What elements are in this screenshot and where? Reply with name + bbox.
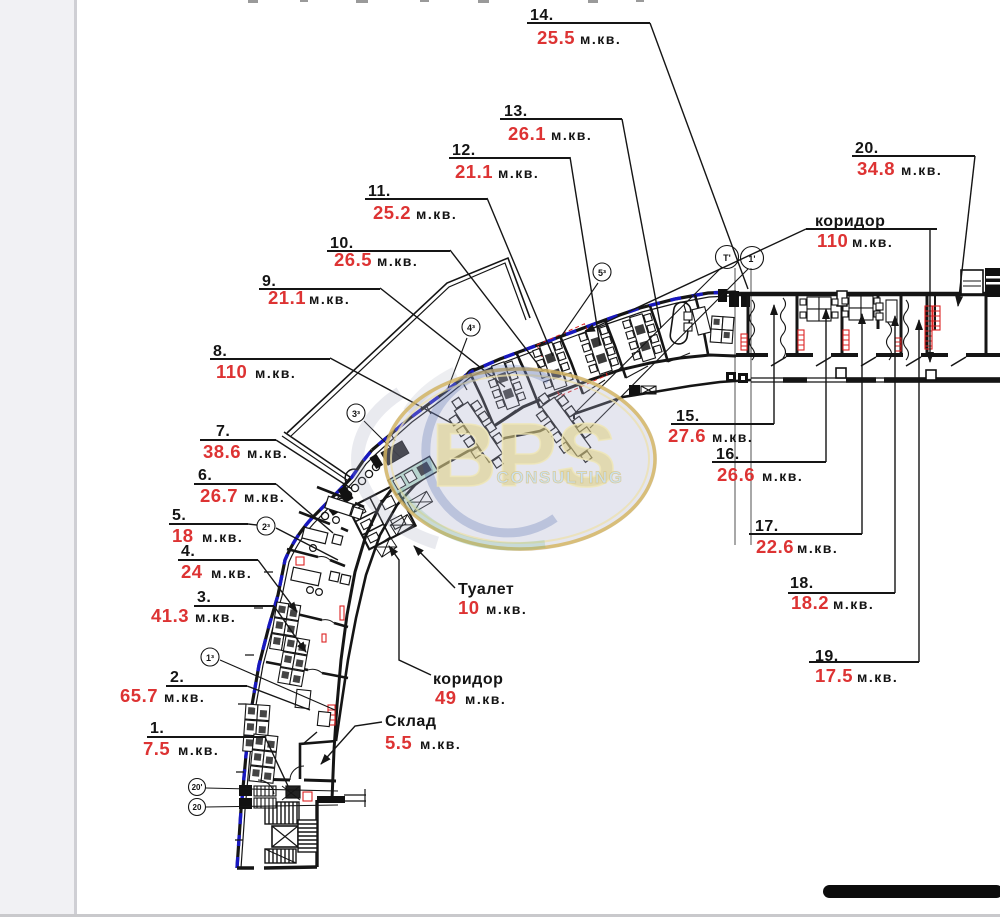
svg-text:м.кв.: м.кв.: [712, 429, 753, 445]
svg-text:7.5: 7.5: [143, 738, 170, 759]
svg-text:3.: 3.: [197, 589, 211, 606]
svg-text:CONSULTING: CONSULTING: [496, 468, 623, 487]
svg-text:3³: 3³: [352, 409, 360, 419]
svg-text:14.: 14.: [530, 7, 554, 24]
svg-text:17.5: 17.5: [815, 665, 853, 686]
svg-text:8.: 8.: [213, 343, 227, 360]
svg-text:м.кв.: м.кв.: [486, 601, 527, 617]
svg-text:13.: 13.: [504, 103, 528, 120]
svg-text:16.: 16.: [716, 446, 740, 463]
svg-text:м.кв.: м.кв.: [244, 489, 285, 505]
svg-text:110: 110: [216, 361, 247, 382]
svg-text:Склад: Склад: [385, 713, 436, 730]
svg-text:21.1: 21.1: [268, 287, 306, 308]
svg-text:м.кв.: м.кв.: [551, 127, 592, 143]
svg-text:м.кв.: м.кв.: [498, 165, 539, 181]
svg-text:38.6: 38.6: [203, 441, 241, 462]
svg-text:м.кв.: м.кв.: [178, 742, 219, 758]
svg-text:коридор: коридор: [815, 213, 885, 230]
svg-text:коридор: коридор: [433, 671, 503, 688]
svg-text:м.кв.: м.кв.: [202, 529, 243, 545]
svg-text:12.: 12.: [452, 142, 476, 159]
svg-text:20': 20': [192, 783, 203, 792]
svg-text:2.: 2.: [170, 669, 184, 686]
svg-text:м.кв.: м.кв.: [762, 468, 803, 484]
svg-text:21.1: 21.1: [455, 161, 493, 182]
svg-text:18.2: 18.2: [791, 592, 829, 613]
svg-text:м.кв.: м.кв.: [580, 31, 621, 47]
svg-text:м.кв.: м.кв.: [247, 445, 288, 461]
svg-text:24: 24: [181, 561, 203, 582]
svg-text:22.6: 22.6: [756, 536, 794, 557]
svg-text:м.кв.: м.кв.: [797, 540, 838, 556]
svg-text:м.кв.: м.кв.: [195, 609, 236, 625]
svg-text:1.: 1.: [150, 720, 164, 737]
svg-text:27.6: 27.6: [668, 425, 706, 446]
svg-text:65.7: 65.7: [120, 685, 158, 706]
svg-text:м.кв.: м.кв.: [857, 669, 898, 685]
svg-text:26.1: 26.1: [508, 123, 546, 144]
svg-text:1³: 1³: [206, 653, 214, 663]
svg-text:17.: 17.: [755, 518, 779, 535]
svg-text:15.: 15.: [676, 408, 700, 425]
svg-text:м.кв.: м.кв.: [420, 736, 461, 752]
svg-text:м.кв.: м.кв.: [833, 596, 874, 612]
svg-text:4³: 4³: [467, 323, 475, 333]
svg-text:м.кв.: м.кв.: [211, 565, 252, 581]
svg-text:1': 1': [748, 254, 755, 264]
svg-text:26.7: 26.7: [200, 485, 238, 506]
svg-text:26.5: 26.5: [334, 249, 372, 270]
svg-text:4.: 4.: [181, 543, 195, 560]
svg-text:18.: 18.: [790, 575, 814, 592]
svg-text:м.кв.: м.кв.: [309, 291, 350, 307]
svg-text:41.3: 41.3: [151, 605, 189, 626]
svg-text:49: 49: [435, 687, 457, 708]
svg-text:25.2: 25.2: [373, 202, 411, 223]
svg-text:Туалет: Туалет: [458, 581, 514, 598]
svg-text:20: 20: [193, 803, 202, 812]
svg-text:34.8: 34.8: [857, 158, 895, 179]
svg-text:5.: 5.: [172, 507, 186, 524]
svg-text:10: 10: [458, 597, 480, 618]
svg-text:25.5: 25.5: [537, 27, 575, 48]
svg-text:7.: 7.: [216, 423, 230, 440]
svg-text:м.кв.: м.кв.: [255, 365, 296, 381]
svg-text:2³: 2³: [262, 522, 270, 532]
svg-text:6.: 6.: [198, 467, 212, 484]
svg-text:20.: 20.: [855, 140, 879, 157]
svg-text:110: 110: [817, 230, 848, 251]
svg-text:м.кв.: м.кв.: [901, 162, 942, 178]
svg-text:м.кв.: м.кв.: [416, 206, 457, 222]
svg-text:м.кв.: м.кв.: [377, 253, 418, 269]
svg-text:5³: 5³: [598, 268, 606, 278]
svg-text:BPS: BPS: [431, 406, 616, 506]
svg-text:м.кв.: м.кв.: [465, 691, 506, 707]
svg-text:26.6: 26.6: [717, 464, 755, 485]
svg-text:T': T': [723, 253, 731, 263]
svg-text:м.кв.: м.кв.: [852, 234, 893, 250]
svg-text:5.5: 5.5: [385, 732, 412, 753]
svg-text:м.кв.: м.кв.: [164, 689, 205, 705]
svg-text:11.: 11.: [368, 183, 391, 200]
